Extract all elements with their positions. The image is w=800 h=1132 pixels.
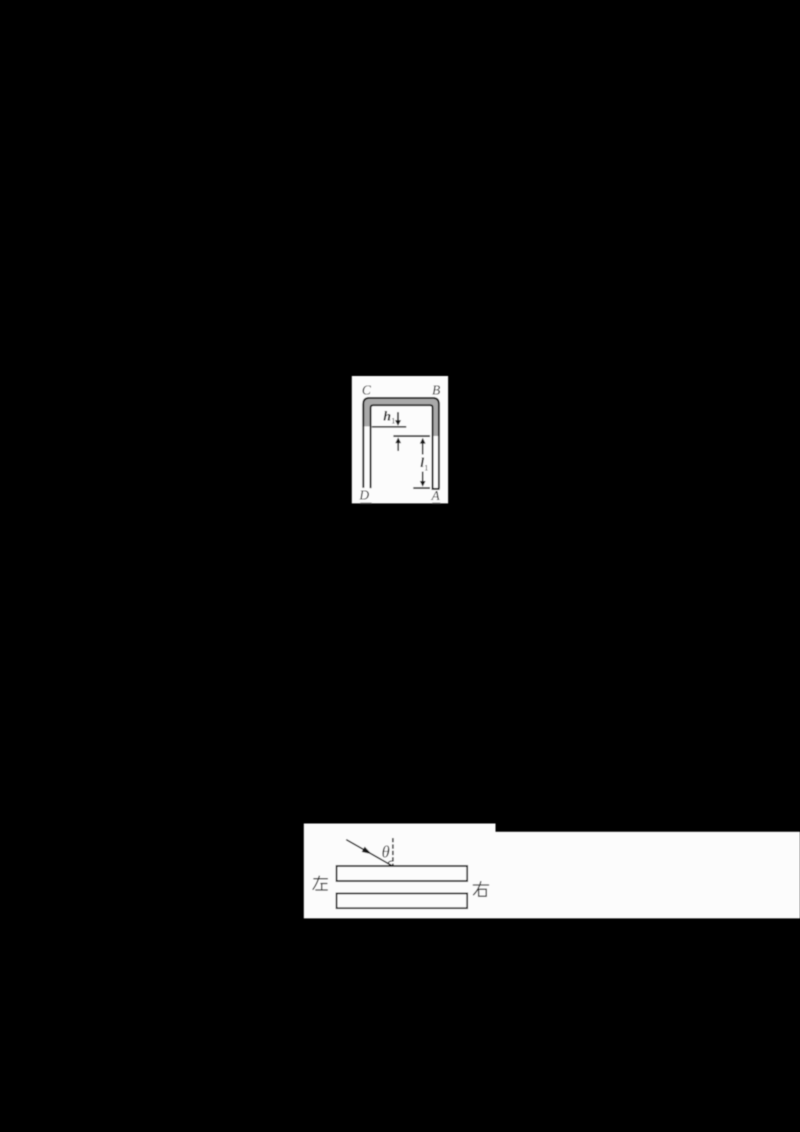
svg-text:B: B	[432, 382, 440, 397]
svg-text:1: 1	[391, 417, 395, 426]
svg-text:θ: θ	[382, 843, 390, 862]
svg-text:h: h	[383, 409, 391, 424]
svg-text:C: C	[362, 382, 372, 397]
svg-text:A: A	[431, 488, 441, 503]
svg-text:1: 1	[424, 464, 428, 473]
svg-text:D: D	[358, 487, 369, 502]
